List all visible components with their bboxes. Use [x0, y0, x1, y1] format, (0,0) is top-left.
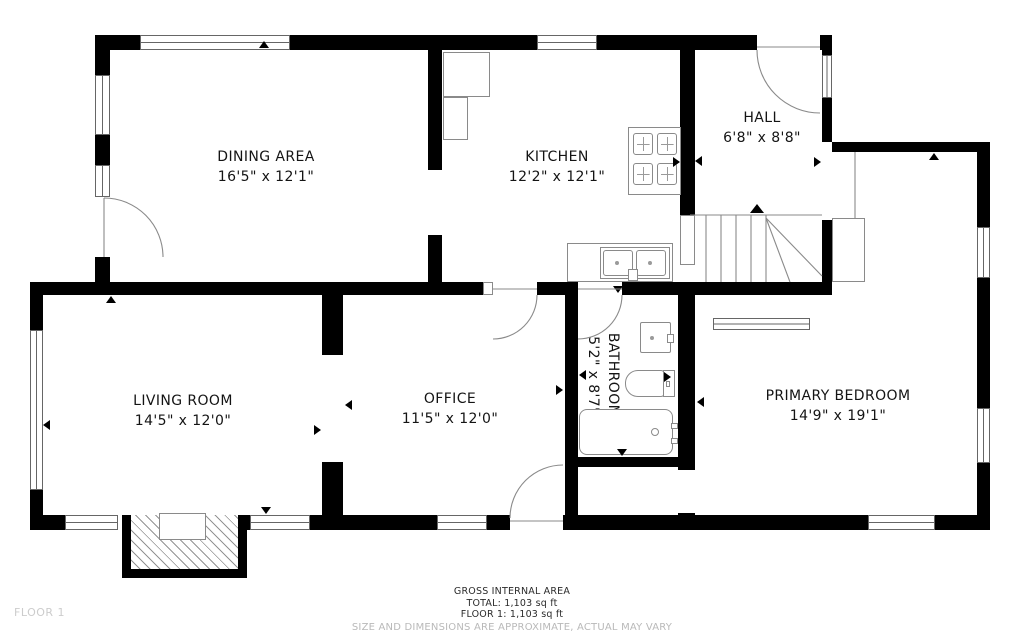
stair-tread-line — [766, 218, 822, 276]
door-swing-arc — [578, 295, 622, 339]
door-swing-arc — [493, 295, 537, 339]
stair-tread-line — [766, 218, 790, 282]
door-swing-arc — [510, 465, 563, 518]
door-swing-and-stairs-overlay — [0, 0, 1024, 640]
door-swing-arc — [104, 198, 163, 257]
door-swing-arc — [757, 50, 820, 113]
floor-plan-canvas: DINING AREA 16'5" x 12'1" KITCHEN 12'2" … — [0, 0, 1024, 640]
